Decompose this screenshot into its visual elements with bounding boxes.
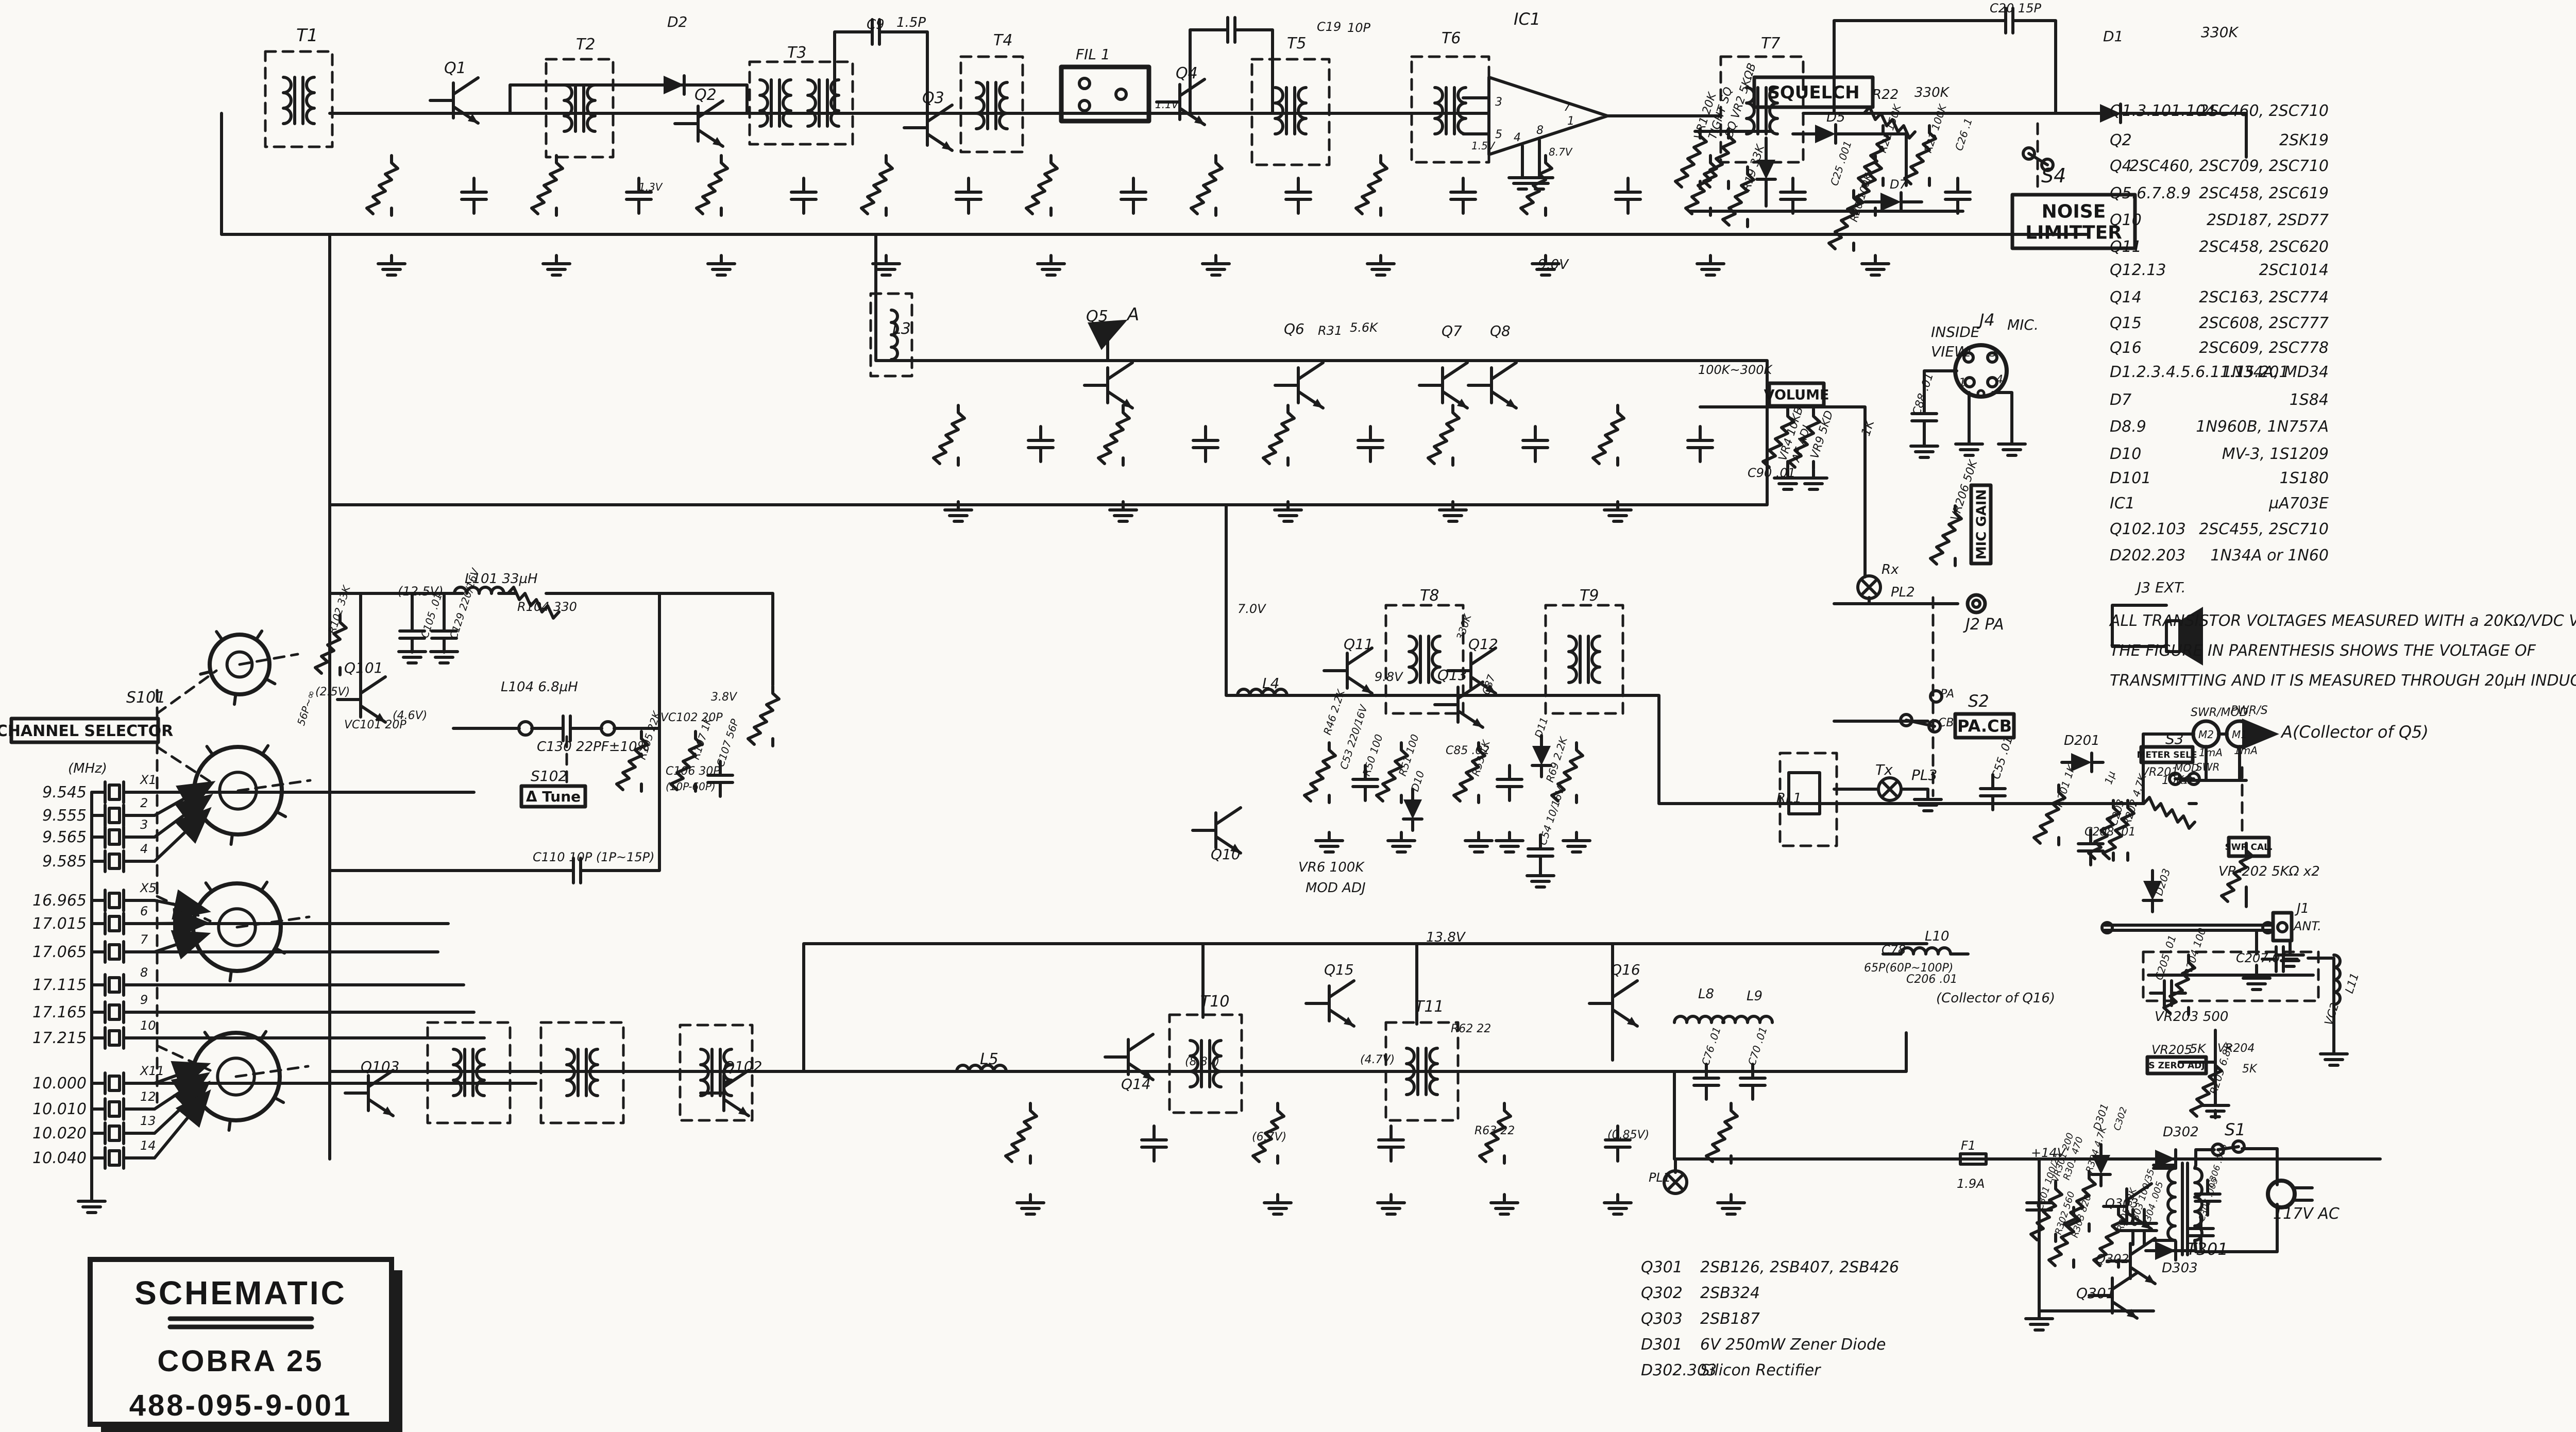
schematic-label: J1: [2294, 901, 2309, 916]
schematic-label: 5K: [2190, 1042, 2207, 1056]
schematic-label: 1: [1567, 115, 1574, 128]
schematic-label: R22: [1872, 87, 1899, 103]
schematic-label: T4: [993, 31, 1012, 49]
schematic-label: 1.3V: [639, 181, 663, 193]
schematic-label: CB: [1938, 717, 1954, 729]
part-value: 2SB187: [1700, 1310, 1760, 1328]
part-value: Silicon Rectifier: [1700, 1361, 1821, 1379]
schematic-label: MIC.: [2007, 316, 2039, 333]
part-value: 2SC458, 2SC620: [2199, 238, 2329, 256]
schematic-label: D7: [1890, 177, 1907, 192]
schematic-label: Q302: [2096, 1252, 2129, 1266]
schematic-label: T7: [1761, 35, 1780, 53]
part-value: 1S84: [2290, 391, 2329, 409]
schematic-label: C26 .1: [1953, 116, 1975, 152]
schematic-label: ANT.: [2293, 919, 2321, 933]
schematic-label: R205 6.8K: [2207, 1041, 2235, 1096]
schematic-label: Q3: [922, 89, 944, 107]
schematic-label: IC1: [1514, 9, 1540, 29]
crystal-pin: 12: [140, 1089, 156, 1104]
schematic-label: C90 .01: [1748, 466, 1795, 480]
label-box-text: METER SELE: [2137, 750, 2197, 760]
part-value: 2SC455, 2SC710: [2199, 520, 2329, 538]
schematic-label: T2: [576, 36, 595, 54]
schematic-label: 5.6K: [1350, 320, 1379, 335]
schematic-label: M1: [2232, 728, 2247, 741]
label-box-meter-selector: METER SELE: [2137, 747, 2197, 762]
schematic-label: Q15: [1324, 961, 1354, 978]
schematic-label: C55 .01: [1990, 735, 2015, 781]
part-value: 2SC163, 2SC774: [2199, 288, 2329, 306]
schematic-label: 3: [1990, 347, 1997, 360]
schematic-label: J3 EXT.: [2134, 579, 2186, 596]
schematic-label: R201 1K: [2053, 762, 2078, 808]
schematic-label: Q2: [694, 86, 717, 104]
schematic-label: VR-202 5KΩ x2: [2218, 864, 2320, 879]
schematic-label: 7: [1564, 101, 1571, 114]
schematic-label: L3: [892, 320, 911, 338]
schematic-label: MOD ADJ: [1306, 880, 1366, 896]
label-box-text: PA.CB: [1957, 717, 2012, 736]
schematic-label: Q103: [361, 1058, 399, 1075]
part-value: 2SC458, 2SC619: [2199, 184, 2329, 202]
part-value: 2SB126, 2SB407, 2SB426: [1700, 1258, 1899, 1276]
schematic-label: PL1: [1649, 1170, 1671, 1185]
schematic-label: T8: [1420, 587, 1439, 605]
crystal-pin: 10: [140, 1018, 156, 1033]
crystal-frequency: 17.065: [32, 943, 87, 961]
schematic-label: C76 .01: [1699, 1025, 1723, 1067]
part-ref: D301: [1641, 1336, 1682, 1354]
label-box-text: SWR CAL.: [2225, 842, 2273, 853]
part-value: 2SC460, 2SC710: [2199, 102, 2329, 120]
schematic-label: A: [1126, 304, 1139, 325]
part-value: µA703E: [2268, 495, 2329, 513]
schematic-label: 8.7V: [1549, 146, 1573, 158]
schematic-label: T11: [1415, 998, 1444, 1016]
schematic-label: C70 .01: [1745, 1025, 1770, 1067]
part-value: 2SC608, 2SC777: [2199, 314, 2329, 332]
schematic-label: J4: [1976, 310, 1995, 330]
schematic-label: (4.6V): [393, 709, 427, 722]
schematic-label: L10: [1925, 929, 1950, 944]
part-ref: Q301: [1641, 1258, 1683, 1276]
crystal-frequency: 10.040: [32, 1149, 87, 1167]
schematic-label: 1K: [1858, 417, 1877, 438]
schematic-label: S102: [531, 768, 567, 785]
crystal-frequency: 10.000: [32, 1075, 87, 1093]
schematic-label: R62 22: [1451, 1022, 1491, 1035]
part-ref: D7: [2110, 391, 2131, 409]
part-ref: D202.203: [2110, 547, 2185, 565]
schematic-label: Tx: [1875, 761, 1893, 778]
part-value: 1N34A, MD34: [2222, 363, 2329, 381]
crystal-pin: X5: [139, 881, 157, 895]
schematic-label: Q13: [1437, 667, 1467, 684]
title-block: SCHEMATIC COBRA 25 488-095-9-001: [90, 1259, 402, 1432]
schematic-label: C110 10P (1P~15P): [533, 850, 654, 864]
schematic-label: 13.8V: [1426, 930, 1466, 945]
part-value: 6V 250mW Zener Diode: [1700, 1336, 1886, 1354]
schematic-artwork: [78, 8, 2380, 1330]
schematic-label: Q14: [1121, 1076, 1151, 1093]
schematic-label: Q10: [1211, 846, 1241, 863]
schematic-label: (MHz): [68, 761, 107, 776]
label-box-s-zero-adj: S ZERO ADJ: [2147, 1057, 2206, 1073]
crystal-pin: 4: [140, 842, 148, 856]
crystal-frequency: 9.585: [42, 853, 87, 871]
crystal-frequency: 9.565: [42, 828, 87, 846]
schematic-label: S2: [1968, 691, 1989, 711]
part-ref: Q303: [1641, 1310, 1683, 1328]
schematic-label: R31: [1318, 323, 1342, 338]
schematic-label: 8: [1536, 124, 1544, 137]
crystal-pin: X1: [139, 773, 157, 787]
part-value: 2SC1014: [2259, 261, 2329, 279]
schematic-label: C208 .01: [2084, 826, 2136, 839]
schematic-label: Q16: [1611, 961, 1640, 978]
schematic-label: A(Collector of Q5): [2280, 722, 2429, 742]
schematic-label: C130 22PF±10%: [537, 739, 650, 755]
wires: [78, 8, 2380, 1330]
label-box-squelch: SQUELCH: [1754, 77, 1873, 107]
schematic-label: L4: [1262, 675, 1279, 692]
schematic-label: PA: [1940, 688, 1954, 701]
schematic-label: L9: [1747, 988, 1762, 1004]
schematic-label: 1.5P: [896, 15, 926, 30]
crystal-pin: 6: [140, 904, 148, 918]
schematic-label: 117V AC: [2273, 1205, 2340, 1223]
schematic-label: PWR/S: [2231, 704, 2268, 717]
schematic-label: D10: [1409, 769, 1427, 793]
part-value: 1N960B, 1N757A: [2196, 418, 2329, 436]
schematic-label: 4: [1514, 131, 1521, 144]
schematic-label: M2: [2198, 728, 2214, 741]
part-ref: Q14: [2110, 288, 2142, 306]
schematic-label: F1: [1961, 1138, 1976, 1153]
schematic-label: D201: [2064, 733, 2100, 748]
schematic-label: INSIDE: [1931, 323, 1980, 340]
schematic-label: D2: [667, 13, 687, 30]
label-box-volume: VOLUME: [1764, 383, 1829, 406]
schematic-label: VR205: [2151, 1043, 2192, 1057]
notes-block: ALL TRANSISTOR VOLTAGES MEASURED WITH a …: [2109, 612, 2576, 690]
schematic-label: Q101: [344, 659, 383, 676]
schematic-label: J2 PA: [1963, 616, 2004, 634]
schematic-label: C19: [1317, 20, 1341, 34]
schematic-label: (0.85V): [1607, 1129, 1649, 1141]
crystal-frequency: 10.020: [32, 1124, 87, 1143]
crystal-pin: 9: [140, 993, 148, 1007]
schematic-label: T10: [1200, 993, 1230, 1011]
schematic-label: 1: [1959, 377, 1966, 389]
schematic-label: C9: [867, 17, 885, 32]
schematic-page: T1Q1T2D2C91.5PT3Q2Q3T4FIL 1Q4T5C1910PT6I…: [0, 0, 2576, 1432]
label-box-delta-tune: Δ Tune: [521, 786, 585, 807]
schematic-label: T5: [1287, 35, 1306, 53]
schematic-label: 5K: [2242, 1063, 2258, 1076]
schematic-label: S3: [2165, 730, 2184, 747]
schematic-label: Q11: [1344, 636, 1374, 653]
crystal-pin: 13: [140, 1114, 156, 1128]
crystal-frequency: 9.545: [42, 783, 87, 802]
schematic-label: S1: [2225, 1120, 2246, 1139]
schematic-label: RL1: [1776, 791, 1802, 806]
schematic-label: T1: [296, 25, 318, 46]
schematic-label: (4.7V): [1360, 1053, 1395, 1066]
part-ref: IC1: [2110, 495, 2135, 513]
label-box-text: VOLUME: [1764, 387, 1829, 403]
schematic-label: C207.01: [2236, 951, 2288, 965]
part-value: 2SB324: [1700, 1284, 1760, 1302]
schematic-label: Q102: [723, 1058, 762, 1075]
note-line: THE FIGURE IN PARENTHESIS SHOWS THE VOLT…: [2110, 642, 2536, 660]
schematic-label: D302: [2163, 1124, 2199, 1140]
schematic-label: L104 6.8µH: [501, 679, 578, 695]
schematic-label: SWR: [2196, 761, 2219, 773]
schematic-label: C54 10/16V: [1536, 785, 1567, 847]
schematic-label: Rx: [1882, 562, 1899, 577]
schematic-label: 56P~∞: [295, 689, 318, 727]
part-ref: D10: [2110, 445, 2141, 463]
schematic-label: Q8: [1490, 322, 1511, 339]
schematic-label: Q6: [1284, 320, 1304, 337]
part-ref: D101: [2110, 469, 2151, 487]
schematic-label: S4: [2041, 164, 2066, 187]
schematic-label: C302: [2112, 1105, 2129, 1132]
part-ref: Q302: [1641, 1284, 1683, 1302]
part-value: 2SC460, 2SC709, 2SC710: [2129, 157, 2329, 175]
label-box-text: CHANNEL SELECTOR: [0, 722, 173, 740]
part-ref: Q4: [2110, 157, 2132, 175]
label-box-text: MIC GAIN: [1974, 489, 1989, 560]
schematic-label: C107 56P: [714, 717, 741, 769]
schematic-label: R63 22: [1475, 1124, 1515, 1137]
schematic-label: T9: [1580, 587, 1599, 605]
crystal-frequency: 10.010: [32, 1100, 87, 1118]
part-ref: D8.9: [2110, 418, 2146, 436]
schematic-label: VR6 100K: [1298, 860, 1365, 875]
schematic-label: R23 100K: [1922, 102, 1949, 154]
note-line: TRANSMITTING AND IT IS MEASURED THROUGH …: [2110, 672, 2576, 690]
schematic-label: T6: [1442, 29, 1461, 47]
label-box-text: SQUELCH: [1767, 82, 1859, 103]
schematic-label: VC2: [2323, 1001, 2342, 1027]
schematic-label: T3: [787, 44, 806, 62]
crystal-pin: 2: [140, 796, 148, 810]
schematic-label: C25 .001: [1828, 139, 1854, 187]
schematic-label: R304 4.7K: [2084, 1124, 2109, 1174]
schematic-label: Q12: [1468, 636, 1498, 653]
schematic-label: 9.0V: [1538, 257, 1569, 272]
schematic-label: C78: [1882, 943, 1906, 957]
part-value: 1S180: [2280, 469, 2329, 487]
part-value: 2SD187, 2SD77: [2207, 211, 2329, 229]
schematic-label: 1.5V: [1471, 140, 1496, 152]
schematic-label: 1mA: [2234, 744, 2258, 757]
schematic-label: C20 15P: [1990, 1, 2041, 15]
note-line: ALL TRANSISTOR VOLTAGES MEASURED WITH a …: [2109, 612, 2576, 630]
schematic-label: T301: [2187, 1239, 2228, 1259]
part-ref: Q10: [2110, 211, 2142, 229]
schematic-label: L11: [2343, 971, 2362, 995]
part-ref: Q12.13: [2110, 261, 2166, 279]
schematic-label: 7.0V: [1238, 602, 1266, 616]
title-line-2: COBRA 25: [157, 1344, 324, 1378]
schematic-label: (6.7V): [1252, 1131, 1286, 1144]
part-ref: Q16: [2110, 339, 2142, 357]
schematic-label: (Collector of Q16): [1936, 991, 2055, 1006]
schematic-label: L8: [1698, 986, 1714, 1002]
title-line-1: SCHEMATIC: [134, 1274, 347, 1311]
schematic-label: PL3: [1911, 766, 1937, 783]
schematic-label: 2: [1964, 347, 1971, 360]
schematic-label: R53 1K: [1469, 738, 1493, 777]
part-ref: Q15: [2110, 314, 2142, 332]
schematic-label: C206 .01: [1906, 973, 1957, 986]
schematic-label: PL2: [1891, 585, 1915, 600]
schematic-label: 1.1V: [1155, 98, 1179, 111]
schematic-label: Q5: [1086, 308, 1108, 326]
schematic-label: (10P-60P): [666, 780, 716, 793]
title-line-3: 488-095-9-001: [129, 1389, 352, 1422]
schematic-label: 330K: [2201, 24, 2239, 41]
schematic-label: VIEW: [1931, 343, 1969, 360]
schematic-label: 100K~300K: [1698, 363, 1773, 377]
part-ref: Q5.6.7.8.9: [2110, 184, 2191, 202]
label-box-mic-gain: MIC GAIN: [1971, 485, 1991, 564]
part-value: MV-3, 1S1209: [2222, 445, 2329, 463]
schematic-label: FIL 1: [1076, 46, 1110, 63]
label-box-text: NOISE: [2042, 201, 2106, 222]
schematic-canvas: T1Q1T2D2C91.5PT3Q2Q3T4FIL 1Q4T5C1910PT6I…: [0, 0, 2576, 1432]
channel-selector-crystals: 9.545X19.55529.56539.585416.965X517.0156…: [32, 773, 536, 1168]
label-box-text: Δ Tune: [526, 788, 581, 805]
crystal-frequency: 9.555: [42, 807, 87, 825]
schematic-label: 3.8V: [711, 691, 738, 704]
label-box-text: LIMITTER: [2025, 223, 2122, 244]
schematic-label: D301: [2091, 1102, 2111, 1132]
schematic-label: D1: [2103, 28, 2123, 45]
schematic-label: C106 30P: [666, 765, 720, 778]
part-ref: Q102.103: [2110, 520, 2186, 538]
schematic-label: S101: [126, 689, 165, 707]
schematic-label: (8.8V): [1185, 1055, 1219, 1068]
schematic-label: Q301: [2076, 1285, 2115, 1302]
crystal-frequency: 17.215: [32, 1029, 87, 1047]
crystal-frequency: 16.965: [32, 892, 87, 910]
schematic-label: VR203 500: [2155, 1009, 2228, 1025]
schematic-label: 330K: [1914, 85, 1950, 100]
label-box-text: S ZERO ADJ: [2148, 1061, 2205, 1071]
crystal-frequency: 17.115: [32, 976, 87, 994]
schematic-label: 3: [1495, 96, 1502, 109]
crystal-pin: 14: [140, 1138, 156, 1153]
crystal-pin: X11: [139, 1064, 164, 1078]
crystal-frequency: 17.015: [32, 915, 87, 933]
schematic-label: 5: [1495, 128, 1502, 141]
crystal-pin: 7: [140, 932, 148, 947]
schematic-label: Q4: [1176, 64, 1198, 82]
schematic-label: R20 100K: [1848, 171, 1875, 223]
schematic-label: 1.9A: [1957, 1177, 1985, 1191]
schematic-label: 4: [1996, 373, 2003, 386]
schematic-label: C88 .01: [1910, 371, 1936, 417]
schematic-label: L5: [980, 1050, 998, 1068]
schematic-label: R104 330: [517, 600, 577, 614]
part-ref: Q2: [2110, 131, 2132, 149]
label-box-pa-cb: PA.CB: [1955, 714, 2014, 738]
crystal-frequency: 17.165: [32, 1003, 87, 1021]
crystal-pin: 3: [140, 817, 148, 832]
schematic-label: (2.5V): [315, 686, 350, 698]
schematic-label: D303: [2162, 1260, 2198, 1276]
schematic-label: D5: [1826, 110, 1845, 125]
schematic-label: R50 100: [1360, 732, 1385, 777]
schematic-label: D11: [1532, 715, 1550, 739]
label-box-channel-selector: CHANNEL SELECTOR: [0, 719, 173, 742]
schematic-label: 9.8V: [1375, 670, 1403, 684]
schematic-label: Q1: [444, 59, 466, 77]
part-value: 2SC609, 2SC778: [2199, 339, 2329, 357]
part-ref: Q11: [2110, 238, 2142, 256]
part-value: 2SK19: [2279, 131, 2329, 149]
schematic-label: 1mA: [2199, 746, 2223, 759]
schematic-label: 10P: [1347, 21, 1371, 35]
schematic-label: 1µ: [2102, 770, 2118, 786]
part-value: 1N34A or 1N60: [2210, 547, 2329, 565]
crystal-pin: 8: [140, 965, 148, 980]
schematic-label: 10KΩ: [2162, 774, 2192, 787]
schematic-label: Q7: [1442, 322, 1462, 339]
